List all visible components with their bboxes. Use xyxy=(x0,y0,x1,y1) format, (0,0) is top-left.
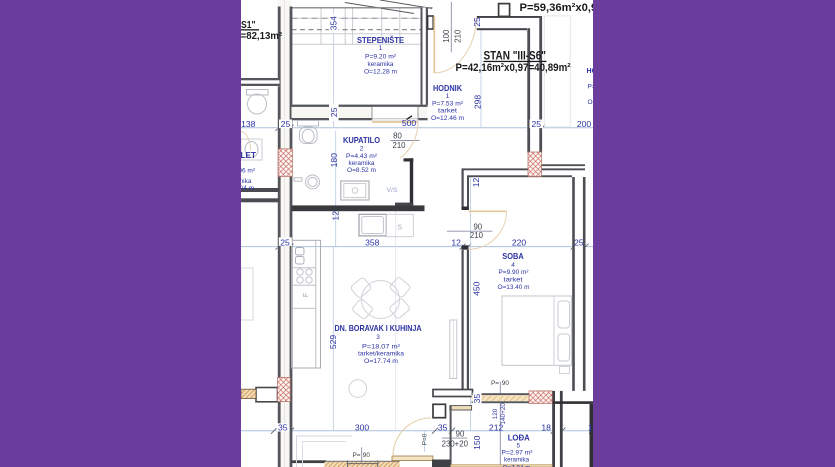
svg-text:keramika: keramika xyxy=(349,160,375,167)
svg-text:35: 35 xyxy=(438,422,448,432)
svg-text:HODNIK: HODNIK xyxy=(433,84,462,93)
svg-text:35: 35 xyxy=(472,394,482,404)
svg-text:STAN "III-S6": STAN "III-S6" xyxy=(484,48,547,62)
svg-text:25: 25 xyxy=(574,237,584,247)
svg-text:O=8.52 m: O=8.52 m xyxy=(347,167,376,174)
svg-text:=82,13m²: =82,13m² xyxy=(241,30,283,42)
svg-text:P=9.20 m²: P=9.20 m² xyxy=(365,54,397,61)
svg-text:12,: 12, xyxy=(451,237,463,247)
svg-text:25: 25 xyxy=(472,17,482,27)
svg-text:1: 1 xyxy=(446,93,450,100)
svg-text:100: 100 xyxy=(442,29,451,43)
svg-text:25: 25 xyxy=(329,107,339,117)
svg-text:80: 80 xyxy=(393,131,402,140)
svg-text:1: 1 xyxy=(379,45,383,52)
svg-text:25: 25 xyxy=(532,119,542,129)
svg-text:3: 3 xyxy=(376,334,380,341)
svg-text:O=12.46 m: O=12.46 m xyxy=(431,115,464,122)
svg-text:DN. BORAVAK I KUHINJA: DN. BORAVAK I KUHINJA xyxy=(335,324,422,333)
svg-text:P=7.53 m²: P=7.53 m² xyxy=(432,101,464,108)
svg-text:25: 25 xyxy=(280,237,290,247)
svg-text:210: 210 xyxy=(470,231,484,240)
svg-text:P=: P= xyxy=(353,452,361,459)
svg-text:220: 220 xyxy=(512,237,527,247)
svg-text:180: 180 xyxy=(329,153,339,168)
svg-text:P=59,36m²x0,97: P=59,36m²x0,97 xyxy=(520,2,604,14)
svg-text:12: 12 xyxy=(331,211,341,221)
svg-text:138: 138 xyxy=(241,119,256,129)
svg-text:LOĐA: LOĐA xyxy=(508,433,530,442)
svg-text:12: 12 xyxy=(471,178,481,188)
svg-text:5: 5 xyxy=(516,443,520,450)
svg-text:90: 90 xyxy=(363,452,371,459)
svg-text:200: 200 xyxy=(577,119,592,129)
svg-text:150: 150 xyxy=(472,435,482,450)
svg-text:529: 529 xyxy=(328,335,338,350)
svg-text:P=2.97 m²: P=2.97 m² xyxy=(502,450,534,457)
svg-text:140+20: 140+20 xyxy=(500,403,507,425)
svg-text:25: 25 xyxy=(281,119,291,129)
svg-text:SOBA: SOBA xyxy=(502,252,524,261)
svg-text:P=9.90 m²: P=9.90 m² xyxy=(499,269,530,276)
svg-text:STEPENIŠTE: STEPENIŠTE xyxy=(357,34,404,45)
svg-text:O=13.40 m: O=13.40 m xyxy=(498,284,530,291)
svg-text:18: 18 xyxy=(541,422,551,432)
svg-text:500: 500 xyxy=(402,118,417,128)
svg-text:210: 210 xyxy=(392,141,406,150)
svg-text:P=0: P=0 xyxy=(422,433,429,445)
svg-text:120: 120 xyxy=(492,408,499,419)
svg-text:P=4.43 m²: P=4.43 m² xyxy=(346,153,378,160)
svg-text:2: 2 xyxy=(360,145,364,152)
svg-text:90: 90 xyxy=(456,430,465,439)
svg-text:P=: P= xyxy=(491,380,499,387)
svg-text:450: 450 xyxy=(471,281,481,296)
svg-text:230+20: 230+20 xyxy=(442,439,469,448)
svg-text:V/S: V/S xyxy=(387,187,398,194)
svg-text:KUPATILO: KUPATILO xyxy=(343,136,381,145)
svg-text:tarket: tarket xyxy=(438,108,457,115)
svg-text:298: 298 xyxy=(473,95,483,110)
svg-text:O=17.74 m: O=17.74 m xyxy=(364,358,398,365)
svg-text:35: 35 xyxy=(278,422,288,432)
svg-text:210: 210 xyxy=(454,29,463,43)
svg-text:4: 4 xyxy=(511,262,515,269)
svg-text:keramika: keramika xyxy=(368,61,394,68)
svg-text:tarket: tarket xyxy=(504,276,523,283)
svg-text:300: 300 xyxy=(355,422,370,432)
svg-text:P=18.07 m²: P=18.07 m² xyxy=(362,343,401,350)
svg-text:O=12.28 m: O=12.28 m xyxy=(364,69,397,76)
svg-text:90: 90 xyxy=(502,380,510,387)
svg-text:P=42,16m²x0,97=40,89m²: P=42,16m²x0,97=40,89m² xyxy=(456,62,571,74)
svg-text:358: 358 xyxy=(365,237,380,247)
svg-text:keramika: keramika xyxy=(504,457,529,464)
svg-text:354: 354 xyxy=(329,16,339,31)
svg-text:F: F xyxy=(303,293,310,297)
svg-text:S: S xyxy=(397,223,402,232)
svg-text:tarket/keramika: tarket/keramika xyxy=(358,351,404,358)
